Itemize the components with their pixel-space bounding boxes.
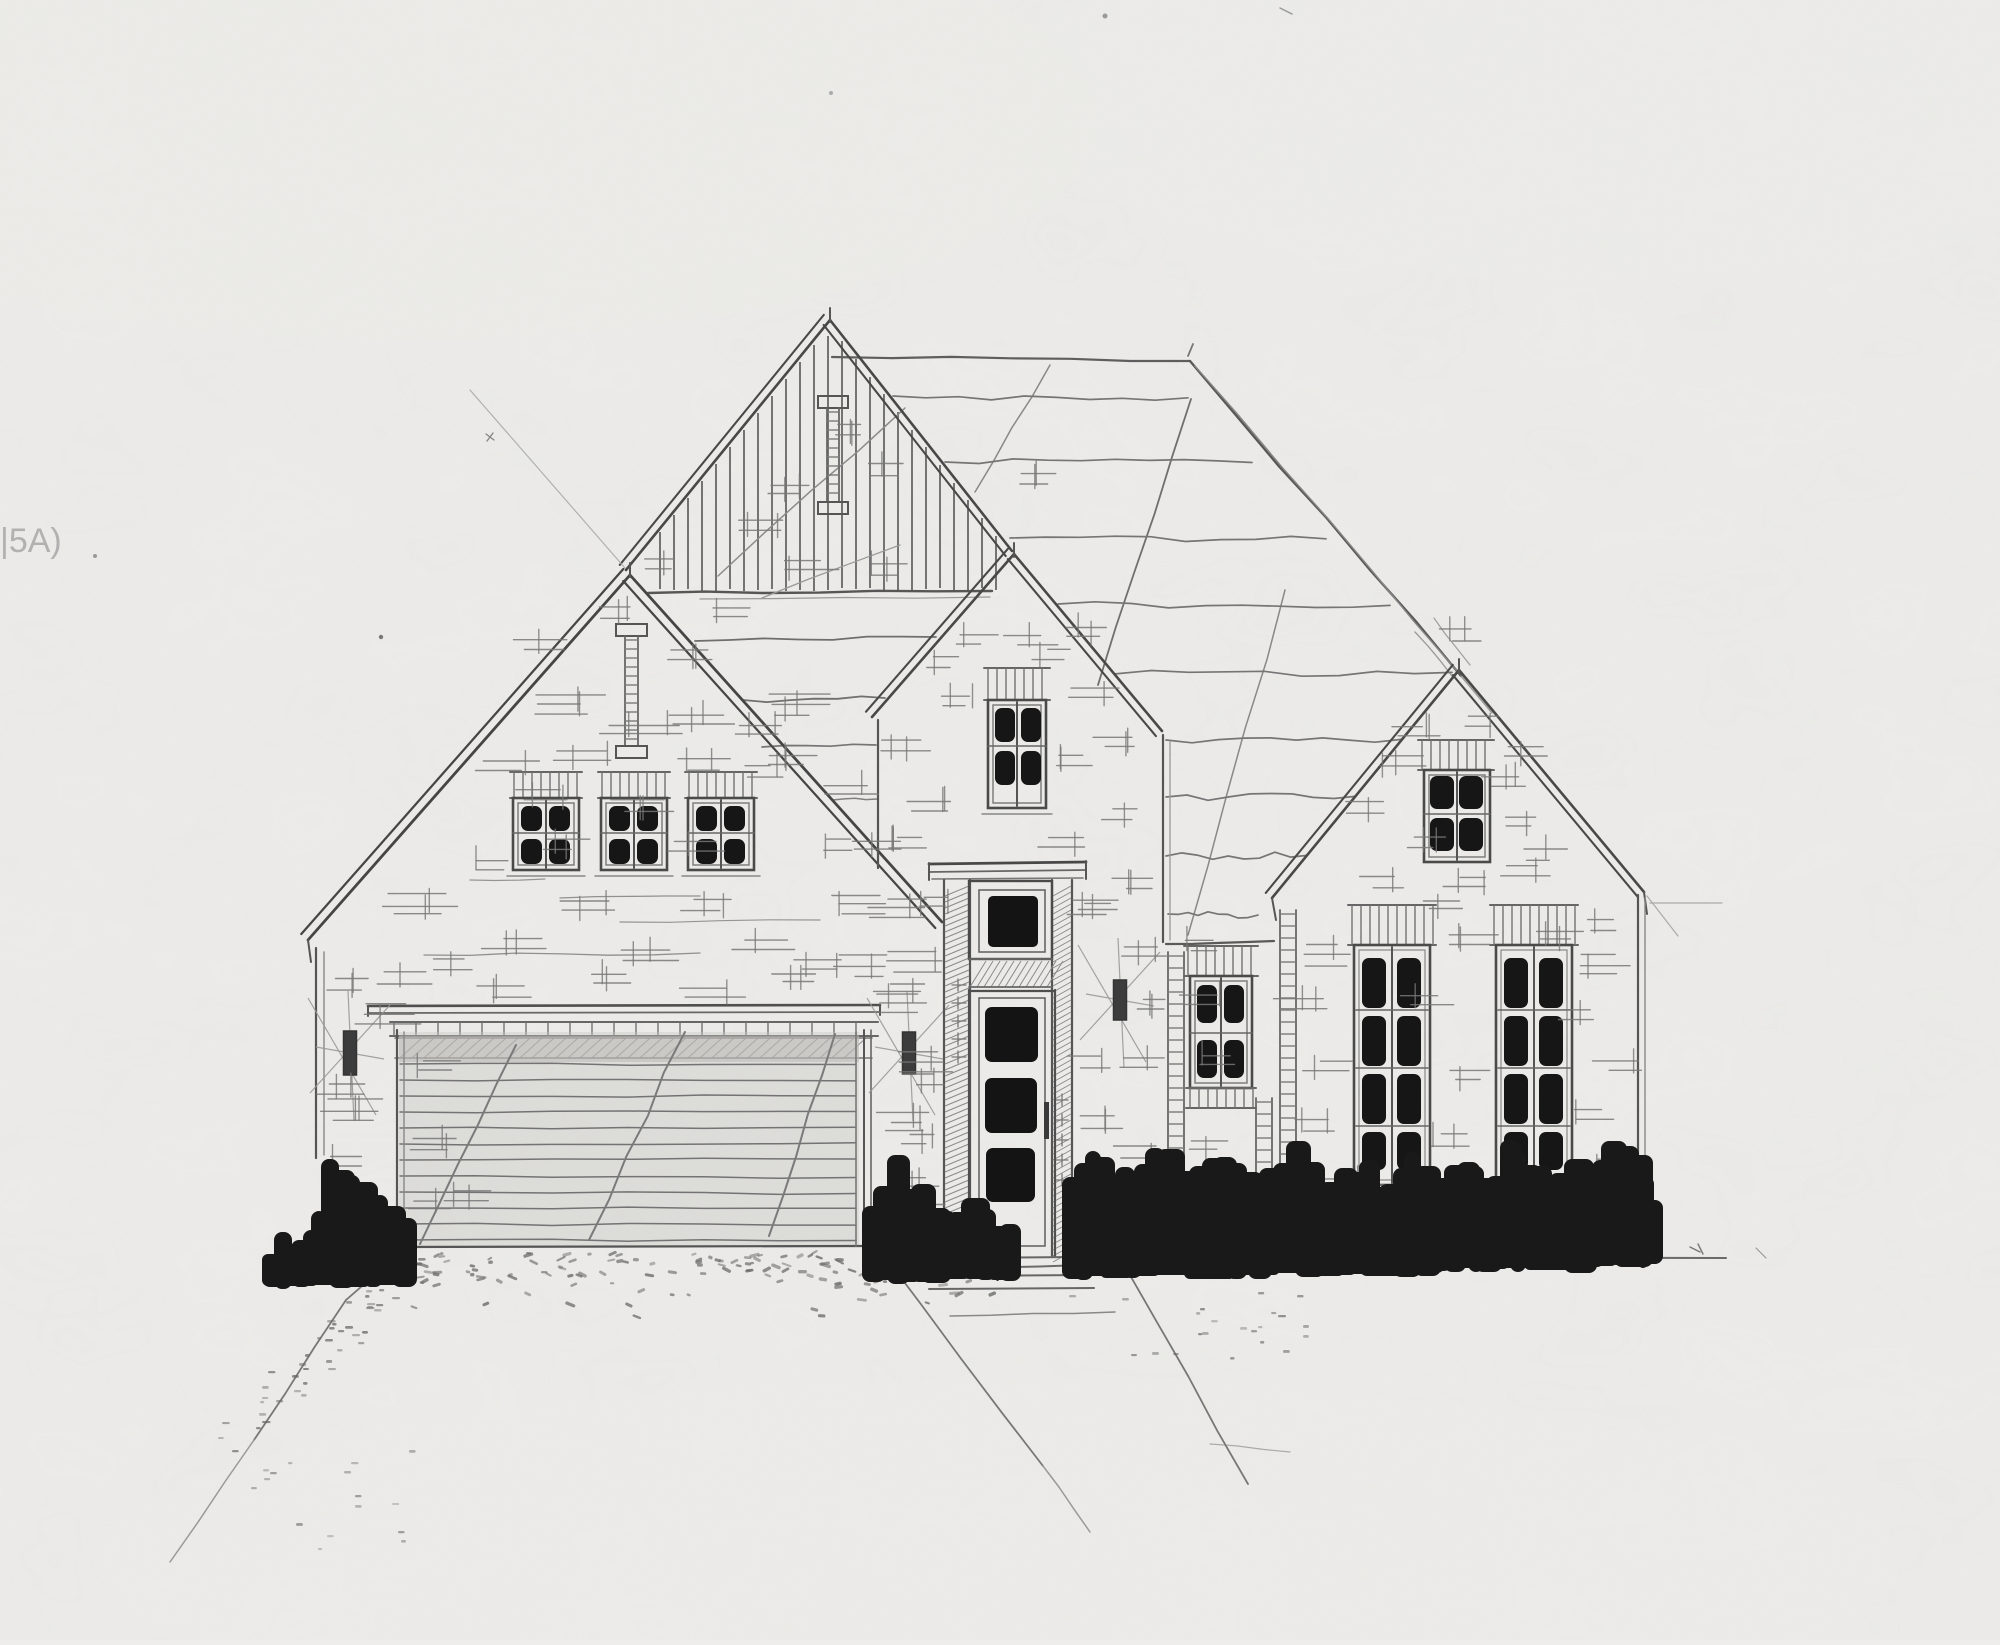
svg-text:|5A): |5A)	[0, 522, 62, 560]
